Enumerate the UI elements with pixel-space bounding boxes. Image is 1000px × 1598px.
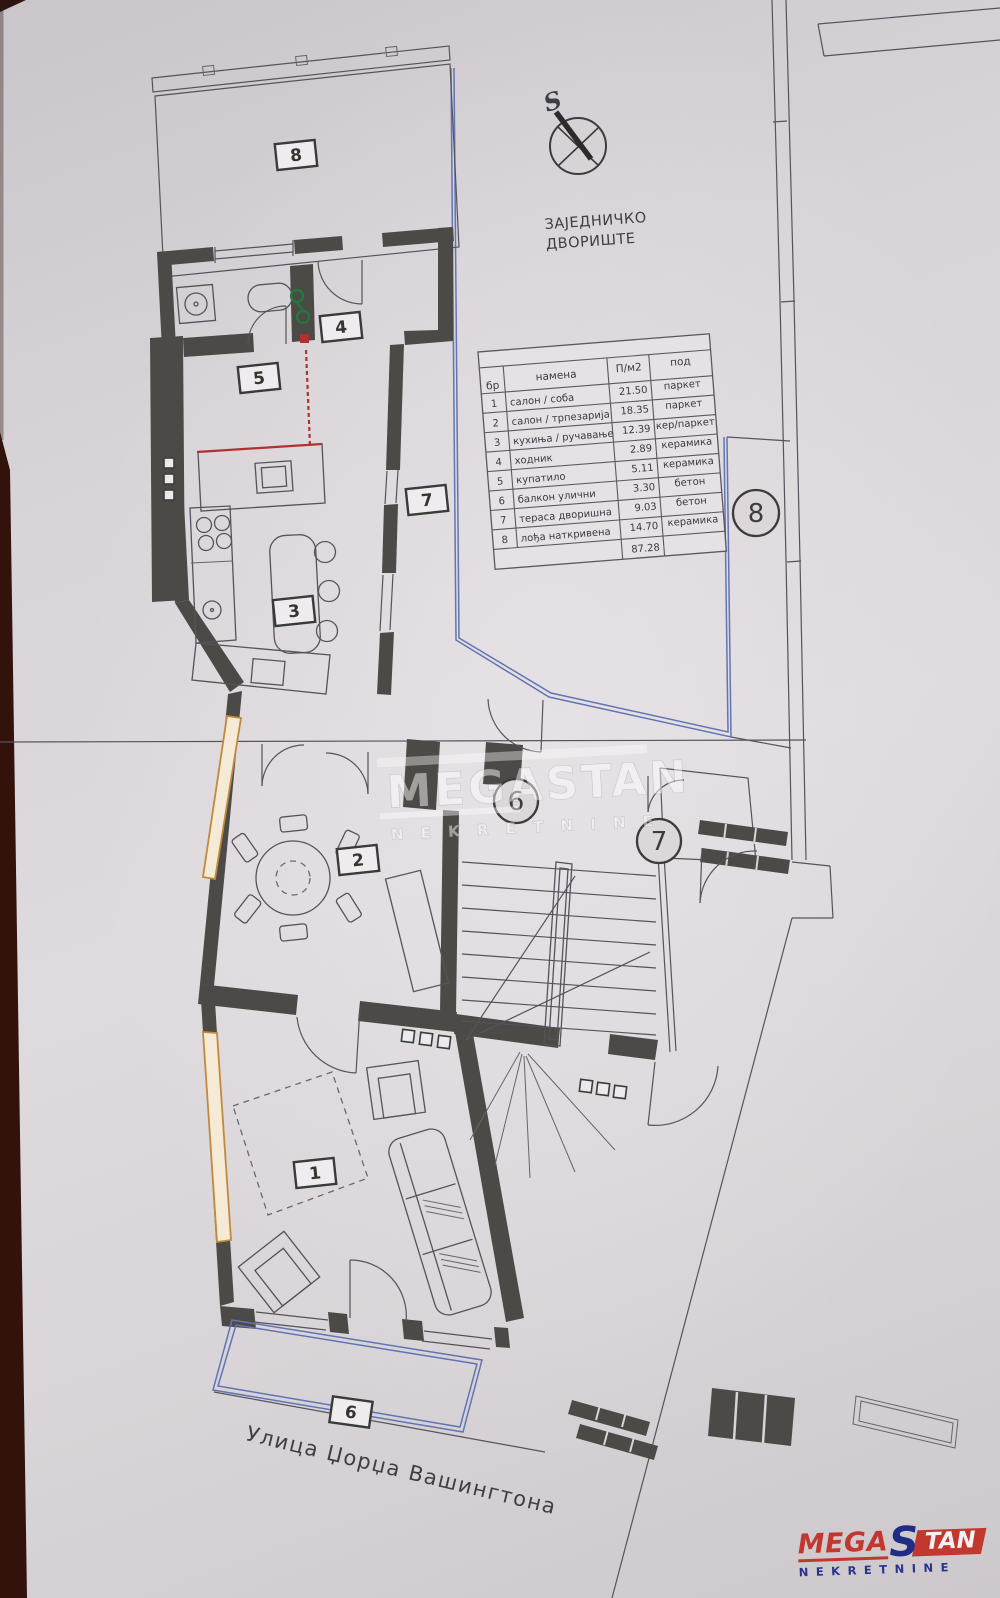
- svg-text:5: 5: [497, 476, 504, 487]
- svg-text:1: 1: [308, 1163, 322, 1184]
- svg-text:3: 3: [287, 601, 301, 622]
- svg-text:18.35: 18.35: [620, 404, 649, 417]
- svg-text:1: 1: [491, 399, 498, 410]
- photo-edge-shadows: [0, 0, 27, 1598]
- staircase: [462, 855, 676, 1178]
- header-num: бр: [486, 379, 500, 392]
- compass-rose: S: [540, 85, 606, 174]
- room-label-2: 2: [337, 845, 379, 875]
- logo-s-text: S: [889, 1525, 920, 1559]
- svg-text:7: 7: [420, 490, 434, 511]
- svg-text:2: 2: [492, 418, 499, 429]
- room-label-8: 8: [275, 140, 317, 170]
- svg-text:2.89: 2.89: [629, 443, 652, 456]
- svg-text:8: 8: [748, 499, 765, 529]
- room-label-7: 7: [406, 485, 448, 515]
- living-furniture: [233, 1061, 495, 1319]
- svg-text:12.39: 12.39: [622, 424, 651, 437]
- room-label-4: 4: [320, 312, 362, 342]
- yard-caption: ЗАЈЕДНИЧКО ДВОРИШТЕ: [544, 210, 649, 253]
- svg-text:21.50: 21.50: [619, 385, 648, 398]
- bathroom-fixtures: [176, 282, 310, 446]
- circled-label-8: 8: [733, 490, 779, 536]
- room-label-6: 6: [329, 1396, 372, 1427]
- legend-total-area: 87.28: [631, 542, 660, 555]
- svg-text:6: 6: [498, 496, 505, 507]
- svg-text:5.11: 5.11: [631, 463, 654, 476]
- center-watermark: MEGASTAN N E K R E T N I N E: [377, 742, 692, 844]
- svg-text:3.30: 3.30: [633, 482, 656, 495]
- floor-plan-photo: S ЗАЈЕДНИЧКО ДВОРИШТЕ бр намена П/м2 под…: [0, 0, 1000, 1598]
- floor-plan-drawing: S ЗАЈЕДНИЧКО ДВОРИШТЕ бр намена П/м2 под…: [0, 0, 1000, 1598]
- svg-text:8: 8: [289, 145, 303, 166]
- svg-text:7: 7: [651, 827, 668, 857]
- street-name: Улица Џорџа Вашингтона: [244, 1422, 559, 1520]
- svg-text:5: 5: [252, 368, 266, 389]
- legend-table: бр намена П/м2 под 1салон / соба21.50пар…: [478, 334, 726, 570]
- logo-mega-text: MEGA: [797, 1529, 888, 1562]
- header-floor: под: [670, 355, 691, 369]
- logo-tan-block: TAN: [912, 1528, 986, 1557]
- compass-north-label: S: [540, 85, 565, 118]
- svg-text:8: 8: [501, 535, 508, 546]
- room-label-1: 1: [294, 1158, 336, 1188]
- svg-text:7: 7: [500, 515, 507, 526]
- svg-text:9.03: 9.03: [634, 501, 657, 514]
- header-area: П/м2: [615, 361, 642, 375]
- room-label-5: 5: [238, 363, 280, 393]
- megastan-logo: MEGASTAN NEKRETNINE: [797, 1523, 995, 1580]
- svg-text:4: 4: [495, 457, 502, 468]
- room-label-3: 3: [273, 596, 315, 626]
- yard-caption-line1: ЗАЈЕДНИЧКО: [544, 210, 647, 233]
- svg-text:3: 3: [494, 438, 501, 449]
- svg-text:2: 2: [351, 850, 365, 871]
- yard-caption-line2: ДВОРИШТЕ: [545, 231, 636, 253]
- svg-text:14.70: 14.70: [629, 521, 658, 534]
- svg-text:4: 4: [334, 317, 348, 338]
